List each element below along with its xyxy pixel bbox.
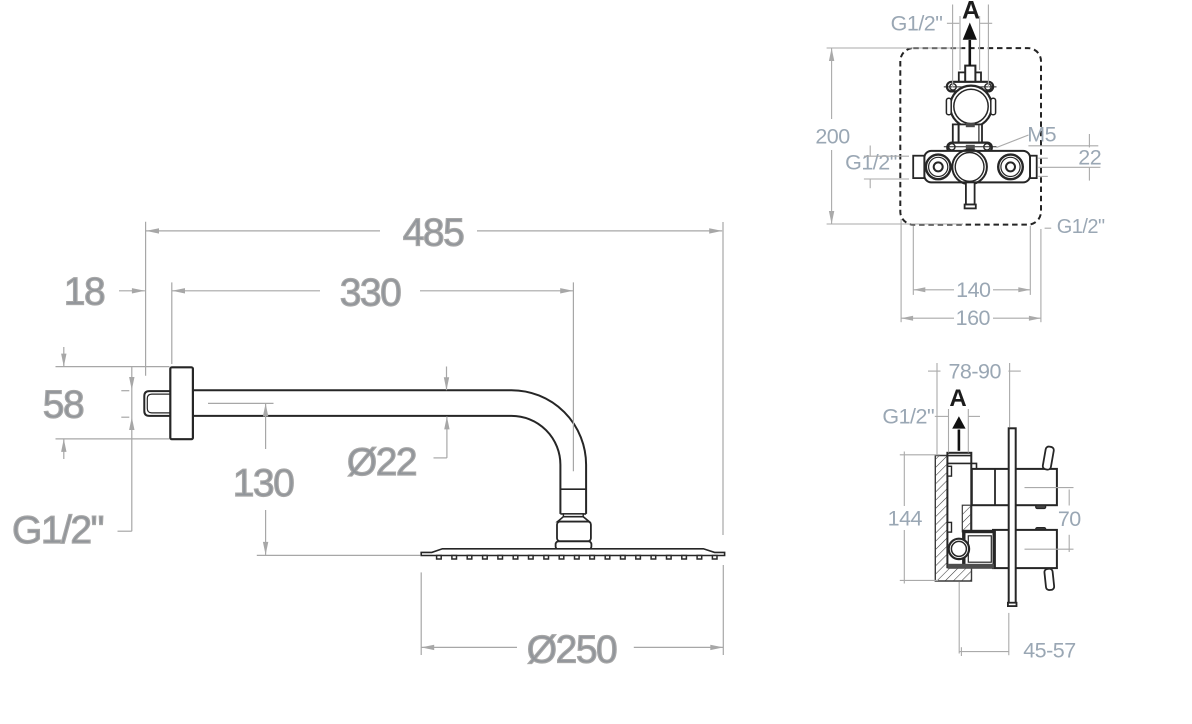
svg-text:140: 140 bbox=[956, 278, 991, 302]
svg-text:G1/2": G1/2" bbox=[845, 150, 897, 174]
svg-text:130: 130 bbox=[233, 462, 294, 505]
svg-text:330: 330 bbox=[340, 272, 401, 315]
svg-text:Ø22: Ø22 bbox=[347, 441, 416, 484]
svg-text:45-57: 45-57 bbox=[1023, 638, 1075, 662]
svg-text:Ø250: Ø250 bbox=[527, 629, 617, 672]
svg-text:78-90: 78-90 bbox=[948, 359, 1001, 383]
svg-text:A: A bbox=[962, 0, 980, 24]
svg-text:G1/2": G1/2" bbox=[891, 11, 943, 35]
svg-text:A: A bbox=[949, 385, 966, 412]
svg-text:200: 200 bbox=[815, 125, 850, 149]
svg-text:G1/2": G1/2" bbox=[1057, 216, 1105, 238]
svg-text:22: 22 bbox=[1078, 145, 1101, 169]
svg-text:58: 58 bbox=[43, 384, 83, 427]
svg-text:160: 160 bbox=[956, 306, 991, 330]
svg-text:M5: M5 bbox=[1027, 122, 1056, 146]
svg-text:144: 144 bbox=[888, 507, 923, 531]
svg-text:G1/2": G1/2" bbox=[12, 509, 104, 552]
svg-text:70: 70 bbox=[1058, 507, 1081, 531]
svg-text:18: 18 bbox=[64, 271, 104, 314]
svg-text:G1/2": G1/2" bbox=[882, 405, 934, 429]
svg-text:485: 485 bbox=[403, 212, 464, 255]
